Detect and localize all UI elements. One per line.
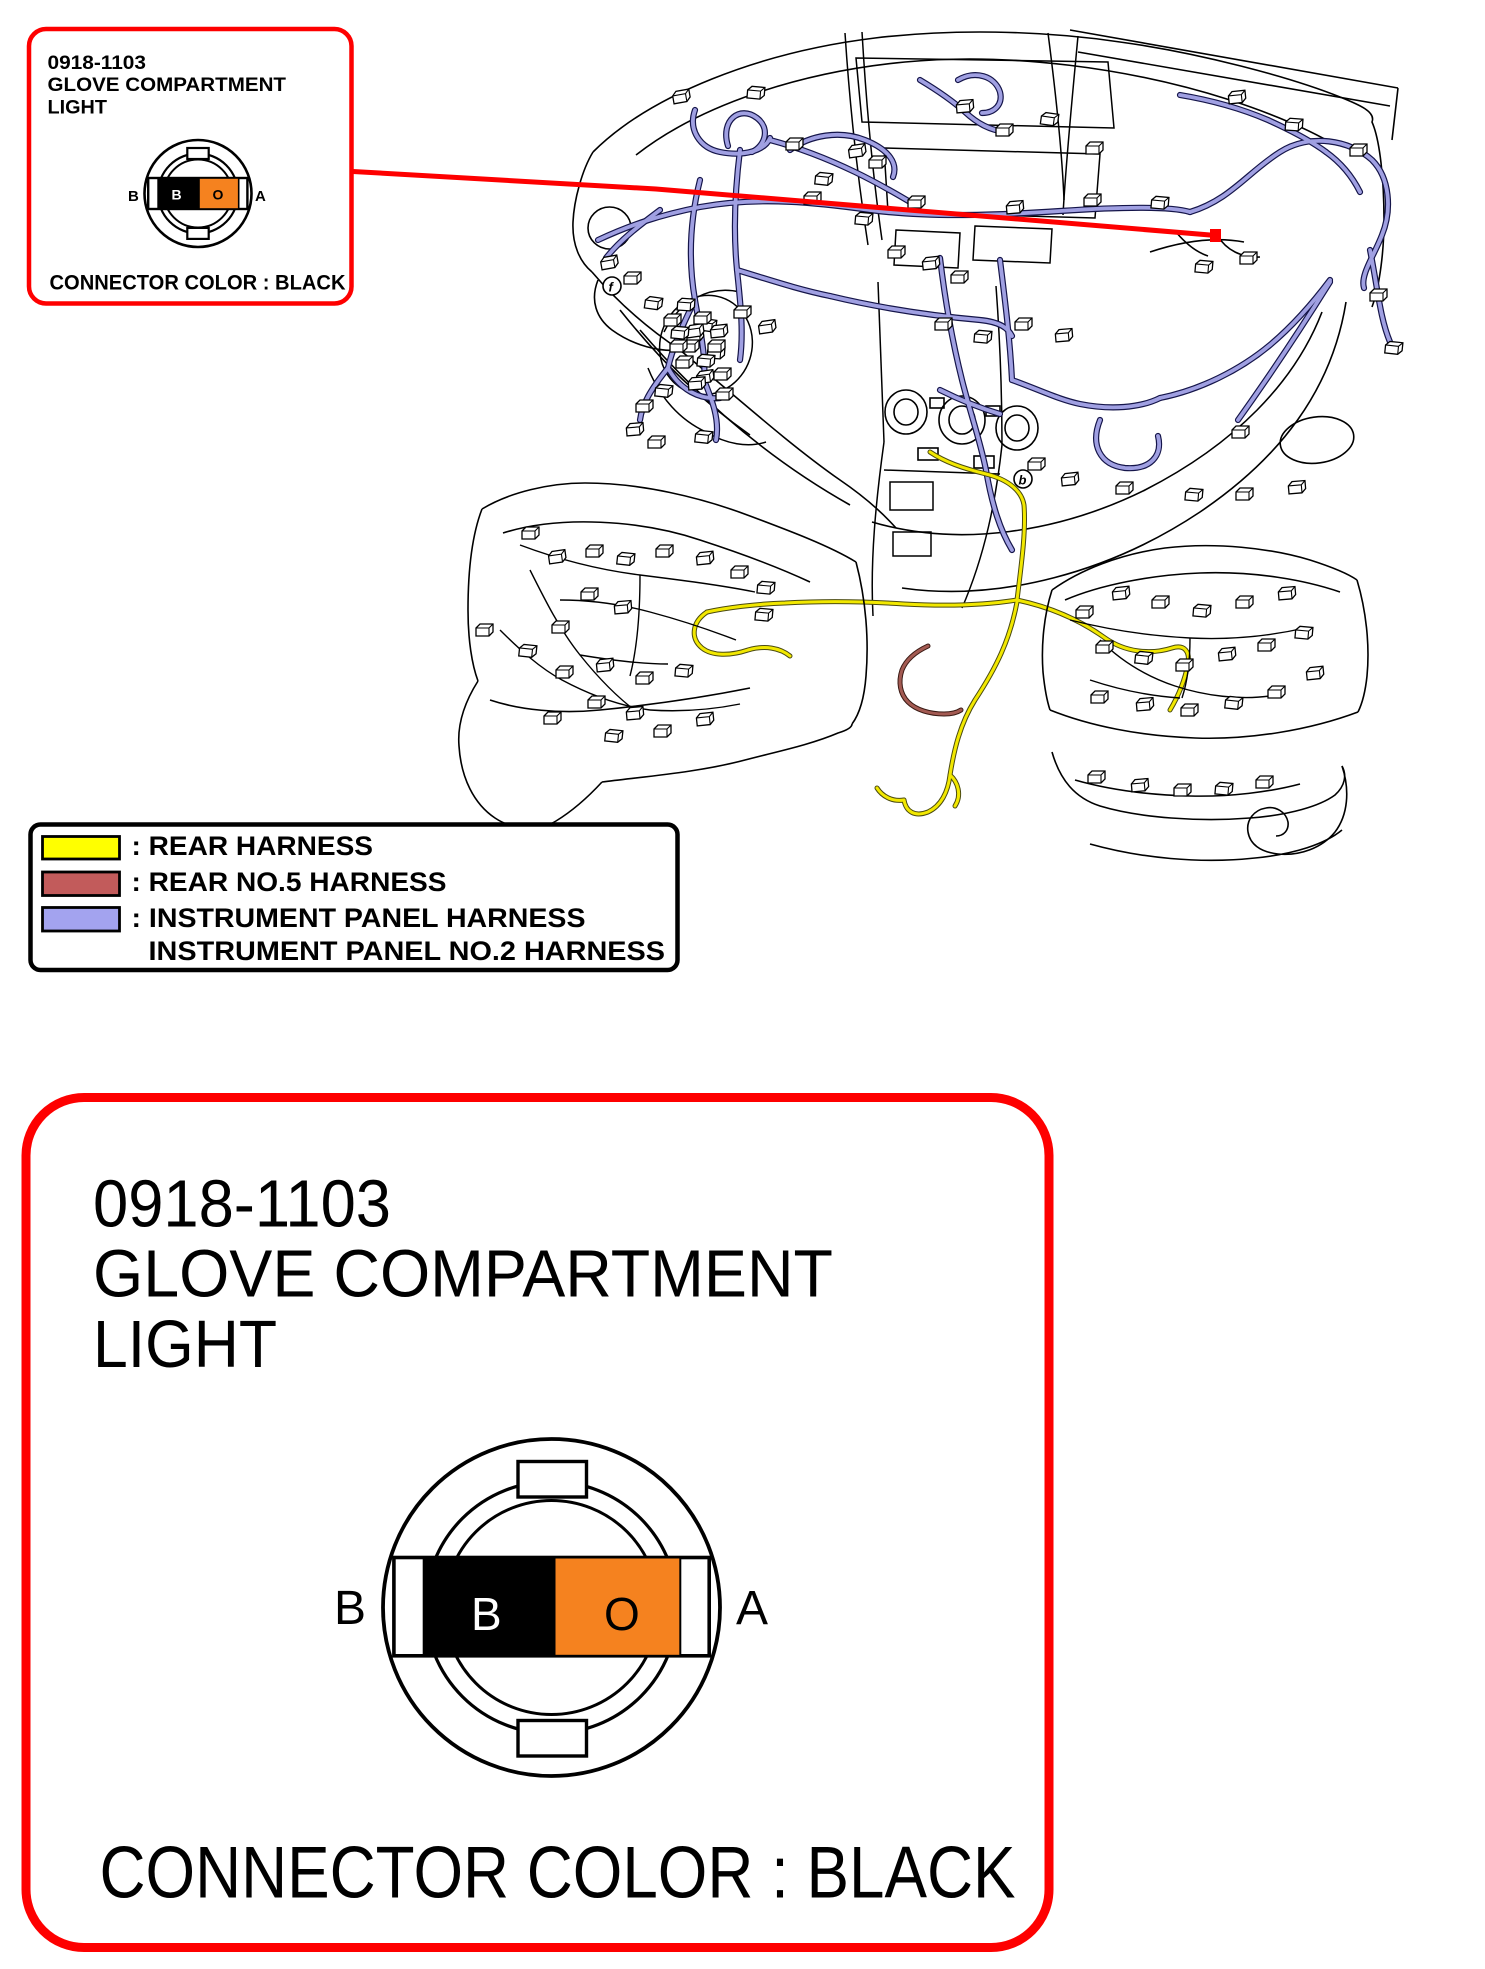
- svg-text:: REAR NO.5 HARNESS: : REAR NO.5 HARNESS: [132, 867, 447, 897]
- svg-text:O: O: [604, 1588, 640, 1640]
- svg-text:0918-1103: 0918-1103: [93, 1167, 391, 1242]
- svg-text:INSTRUMENT PANEL NO.2 HARNESS: INSTRUMENT PANEL NO.2 HARNESS: [149, 936, 666, 966]
- svg-text:B: B: [334, 1582, 366, 1635]
- svg-text:GLOVE COMPARTMENT: GLOVE COMPARTMENT: [93, 1237, 833, 1312]
- svg-text:A: A: [255, 188, 266, 205]
- svg-text:: REAR HARNESS: : REAR HARNESS: [132, 831, 374, 861]
- svg-text:LIGHT: LIGHT: [93, 1307, 277, 1382]
- svg-text:B: B: [128, 188, 139, 205]
- svg-text:CONNECTOR COLOR : BLACK: CONNECTOR COLOR : BLACK: [100, 1833, 1016, 1914]
- svg-text:B: B: [471, 1588, 502, 1640]
- svg-text:CONNECTOR COLOR : BLACK: CONNECTOR COLOR : BLACK: [50, 272, 346, 295]
- svg-text:LIGHT: LIGHT: [48, 98, 108, 119]
- svg-text:O: O: [213, 187, 224, 203]
- svg-text:b: b: [1019, 473, 1027, 488]
- svg-text:A: A: [736, 1582, 768, 1635]
- svg-text:0918-1103: 0918-1103: [48, 53, 147, 74]
- svg-text:GLOVE COMPARTMENT: GLOVE COMPARTMENT: [48, 75, 287, 96]
- svg-text:: INSTRUMENT PANEL HARNESS: : INSTRUMENT PANEL HARNESS: [132, 903, 586, 933]
- svg-text:B: B: [172, 187, 182, 203]
